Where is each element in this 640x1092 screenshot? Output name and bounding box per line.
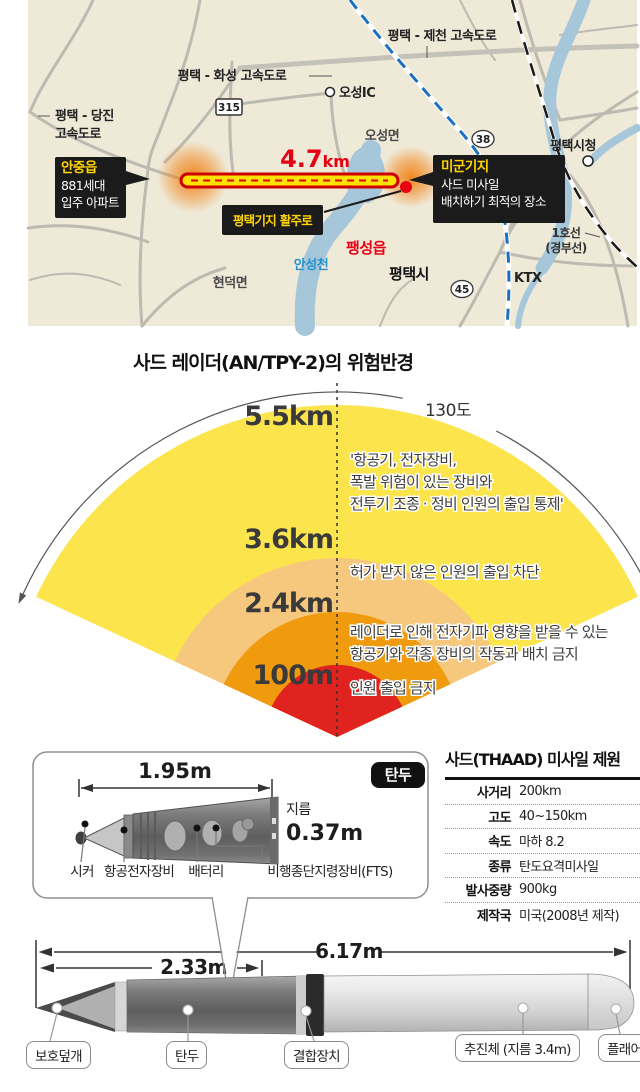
svg-text:315: 315: [218, 102, 240, 114]
route-badge-315: 315: [216, 99, 242, 115]
radar-section: 사드 레이더(AN/TPY-2)의 위험반경 130도 5.5km 3.6km …: [19, 352, 640, 737]
angle-label: 130도: [425, 401, 471, 421]
city-hall-marker-icon: [583, 156, 593, 166]
angle-arrow-left-icon: [19, 592, 27, 604]
diameter-label: 지름: [286, 802, 311, 818]
dim-arrow-icon: [614, 948, 628, 957]
label-anseongcheon: 안성천: [294, 257, 328, 273]
ring-label-5-5km: 5.5km: [244, 401, 333, 432]
coupling-band: [306, 974, 324, 1036]
front-length-label: 2.33m: [160, 955, 228, 979]
propellant-section: [324, 974, 588, 1032]
part-pill-warhead: 탄두: [166, 1041, 207, 1069]
dim-arrow-icon: [40, 964, 54, 973]
flare-section: [588, 974, 634, 1030]
label-pyeongtaek-si: 평택시: [389, 265, 429, 283]
label-highway-jecheon: 평택 - 제천 고속도로: [388, 28, 497, 44]
label-oseong-ic: 오성IC: [339, 86, 375, 101]
missile-illustration: [36, 974, 634, 1036]
label-highway-dangjin-1: 평택 - 당진: [55, 108, 114, 124]
total-length-label: 6.17m: [315, 939, 383, 963]
label-hyeondeok: 현덕면: [213, 275, 247, 291]
label-city-hall: 평택시청: [550, 138, 596, 154]
oseong-ic-marker-icon: [326, 88, 335, 97]
part-pill-flare: 플래어: [598, 1034, 640, 1062]
svg-text:미군기지: 미군기지: [441, 159, 489, 175]
warhead-section: [127, 976, 305, 1034]
infographic-canvas: 평택 - 제천 고속도로 평택 - 화성 고속도로 평택 - 당진 고속도로 3…: [0, 0, 640, 1092]
svg-text:평택기지 활주로: 평택기지 활주로: [233, 213, 313, 228]
spec-row-launch-weight: 발사중량 900kg: [445, 878, 640, 903]
svg-text:배치하기 최적의 장소: 배치하기 최적의 장소: [441, 194, 546, 209]
spec-row-maker: 제작국 미국(2008년 제작): [445, 903, 640, 927]
svg-text:사드 미사일: 사드 미사일: [441, 177, 499, 192]
spec-table: 사드(THAAD) 미사일 제원 사거리 200km 고도 40~150km 속…: [445, 746, 640, 926]
svg-text:폭발 위험이 있는 장비와: 폭발 위험이 있는 장비와: [350, 473, 493, 491]
route-badge-38: 38: [472, 131, 494, 148]
svg-text:38: 38: [476, 134, 491, 146]
svg-text:입주 아파트: 입주 아파트: [61, 195, 119, 210]
dim-arrow-icon: [246, 964, 259, 973]
svg-text:항공기와 각종 장비의 작동과 배치 금지: 항공기와 각종 장비의 작동과 배치 금지: [350, 645, 578, 663]
svg-text:45: 45: [455, 284, 470, 296]
runway-dot-icon: [400, 181, 412, 193]
svg-text:'항공기, 전자장비,: '항공기, 전자장비,: [350, 451, 456, 469]
part-fts: 비행종단지령장비(FTS): [267, 864, 393, 880]
map-section: 평택 - 제천 고속도로 평택 - 화성 고속도로 평택 - 당진 고속도로 3…: [28, 0, 640, 326]
diameter-value: 0.37m: [286, 821, 363, 846]
label-line1: 1호선: [552, 225, 581, 240]
part-avionics: 항공전자장비: [104, 864, 174, 880]
svg-text:레이더로 인해 전자기파 영향을 받을 수 있는: 레이더로 인해 전자기파 영향을 받을 수 있는: [350, 623, 609, 641]
svg-text:전투기 조종 · 정비 인원의 출입 통제': 전투기 조종 · 정비 인원의 출입 통제': [350, 495, 563, 513]
spec-row-speed: 속도 마하 8.2: [445, 829, 640, 854]
ring-label-100m: 100m: [253, 660, 334, 691]
spec-row-type: 종류 탄도요격미사일: [445, 854, 640, 879]
ring-label-2-4km: 2.4km: [244, 588, 333, 619]
label-ktx: KTX: [514, 271, 542, 286]
part-battery: 배터리: [188, 864, 223, 880]
label-highway-hwaseong: 평택 - 화성 고속도로: [178, 68, 287, 84]
label-line1-sub: (경부선): [545, 240, 587, 255]
spec-row-altitude: 고도 40~150km: [445, 805, 640, 830]
svg-text:인원 출입 금지: 인원 출입 금지: [350, 679, 436, 697]
spec-table-title: 사드(THAAD) 미사일 제원: [445, 746, 640, 780]
route-badge-45: 45: [451, 281, 473, 298]
part-pill-coupling: 결합장치: [284, 1041, 349, 1069]
svg-text:881세대: 881세대: [61, 178, 105, 193]
svg-text:허가 받지 않은 인원의 출입 차단: 허가 받지 않은 인원의 출입 차단: [350, 563, 540, 581]
svg-text:안중읍: 안중읍: [61, 159, 97, 176]
warhead-length-label: 1.95m: [138, 759, 212, 783]
radar-title: 사드 레이더(AN/TPY-2)의 위험반경: [133, 352, 413, 374]
infographic-root: 평택 - 제천 고속도로 평택 - 화성 고속도로 평택 - 당진 고속도로 3…: [0, 0, 640, 1092]
part-seeker: 시커: [70, 864, 93, 880]
ring-label-3-6km: 3.6km: [244, 524, 333, 555]
part-pill-propellant: 추진체 (지름 3.4m): [455, 1034, 580, 1062]
label-oseong-myeon: 오성면: [365, 128, 399, 144]
dim-arrow-icon: [39, 948, 53, 957]
label-highway-dangjin-2: 고속도로: [55, 127, 101, 142]
part-pill-protective-cap: 보호덮개: [26, 1041, 91, 1069]
label-paengseong: 팽성읍: [346, 239, 387, 257]
spec-row-range: 사거리 200km: [445, 780, 640, 805]
warhead-panel: 1.95m 탄두 지름 0.37m: [33, 752, 428, 898]
warhead-badge-label: 탄두: [385, 766, 412, 784]
